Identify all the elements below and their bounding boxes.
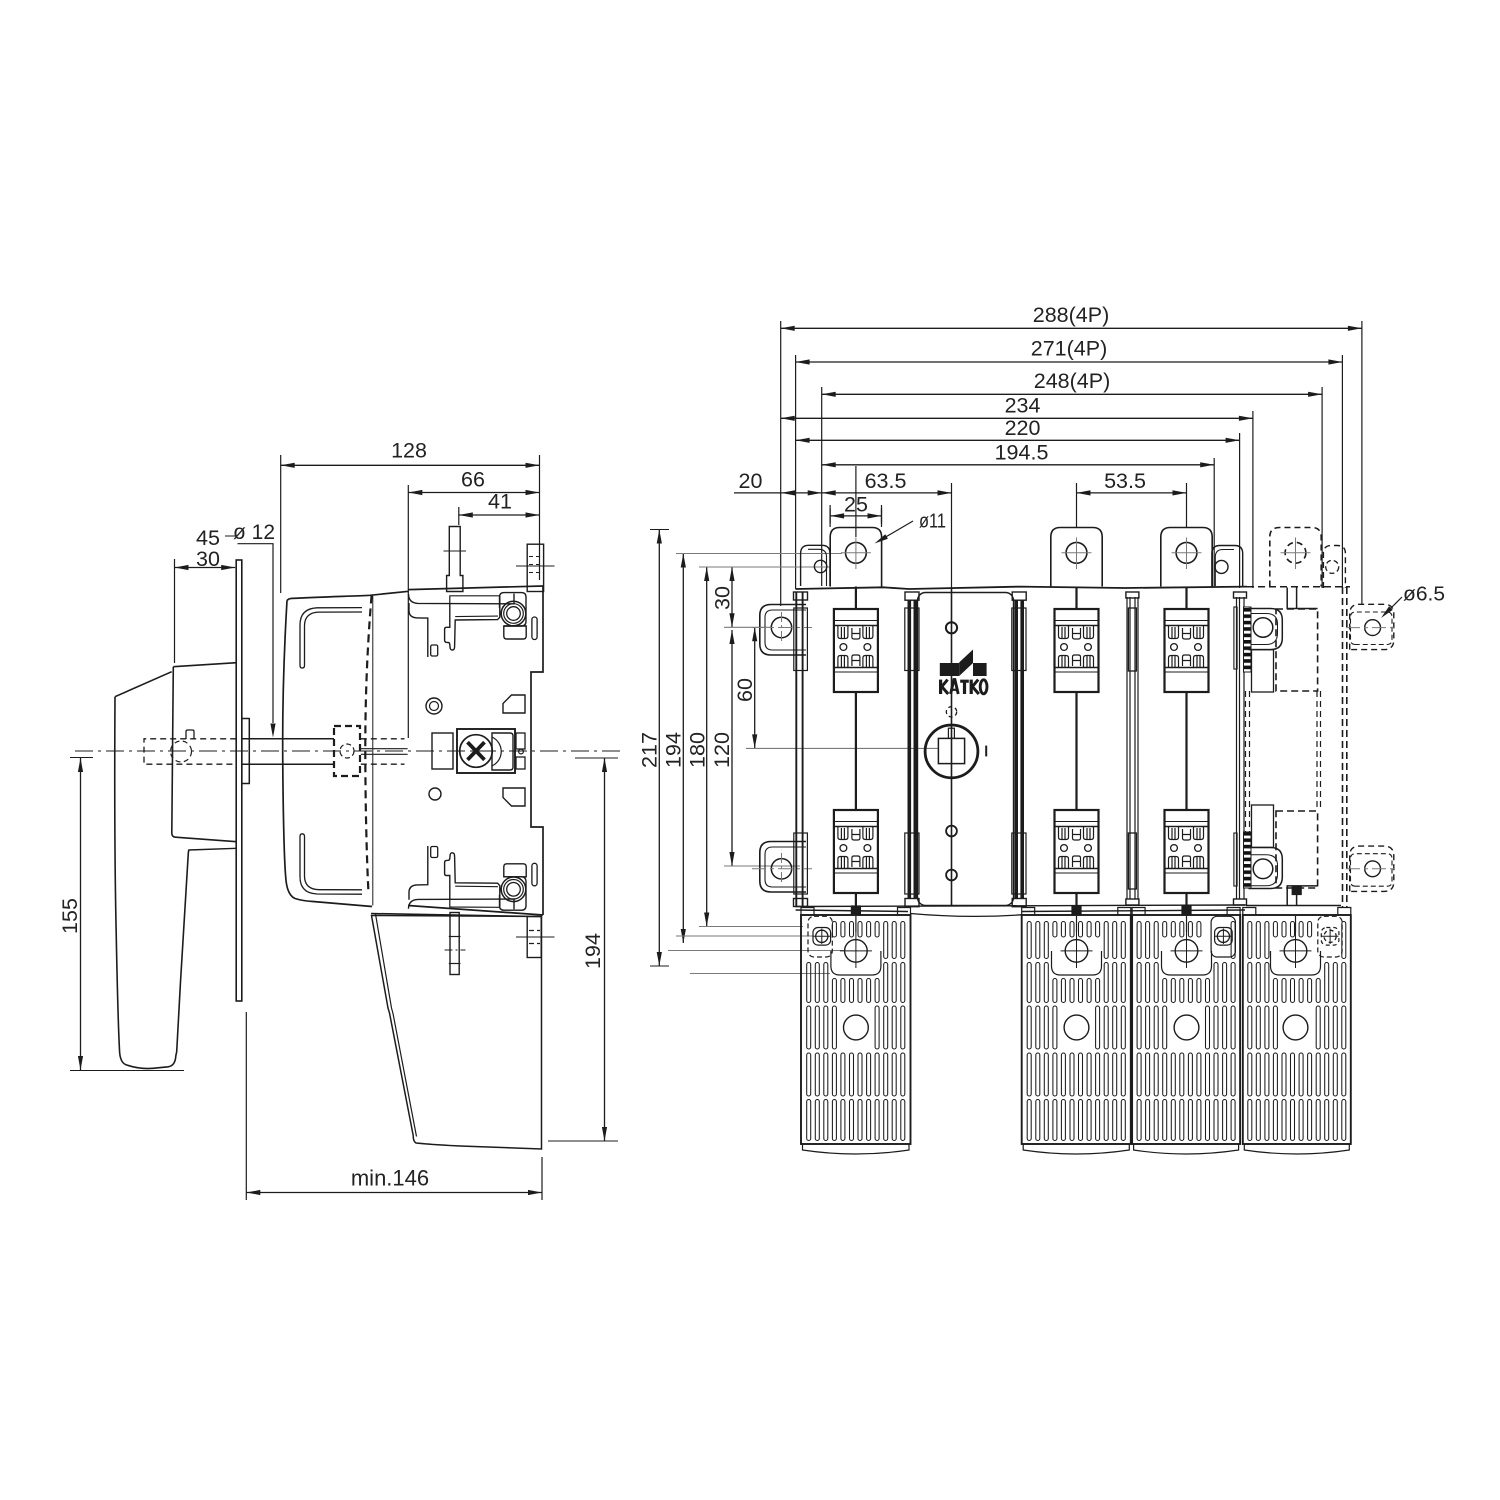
svg-text:180: 180 bbox=[686, 732, 710, 768]
svg-text:155: 155 bbox=[58, 898, 82, 934]
svg-text:ø6.5: ø6.5 bbox=[1403, 584, 1445, 606]
svg-text:20: 20 bbox=[739, 469, 763, 493]
svg-text:41: 41 bbox=[488, 490, 512, 514]
svg-text:248(4P): 248(4P) bbox=[1034, 369, 1111, 393]
svg-text:194: 194 bbox=[662, 732, 686, 768]
svg-text:217: 217 bbox=[638, 732, 662, 768]
svg-text:194: 194 bbox=[581, 933, 605, 969]
svg-text:271(4P): 271(4P) bbox=[1031, 337, 1108, 361]
svg-text:194.5: 194.5 bbox=[995, 440, 1049, 464]
svg-text:30: 30 bbox=[710, 586, 734, 610]
svg-text:ø11: ø11 bbox=[919, 511, 946, 533]
svg-text:128: 128 bbox=[391, 439, 427, 463]
svg-text:53.5: 53.5 bbox=[1104, 469, 1146, 493]
svg-text:120: 120 bbox=[710, 732, 734, 768]
svg-text:63.5: 63.5 bbox=[865, 469, 907, 493]
svg-text:60: 60 bbox=[733, 678, 757, 702]
svg-text:234: 234 bbox=[1005, 394, 1041, 418]
svg-text:min.146: min.146 bbox=[351, 1166, 429, 1191]
svg-text:ø 12: ø 12 bbox=[233, 521, 275, 544]
svg-text:66: 66 bbox=[461, 468, 485, 492]
svg-text:288(4P): 288(4P) bbox=[1033, 303, 1110, 327]
svg-text:220: 220 bbox=[1005, 416, 1041, 440]
